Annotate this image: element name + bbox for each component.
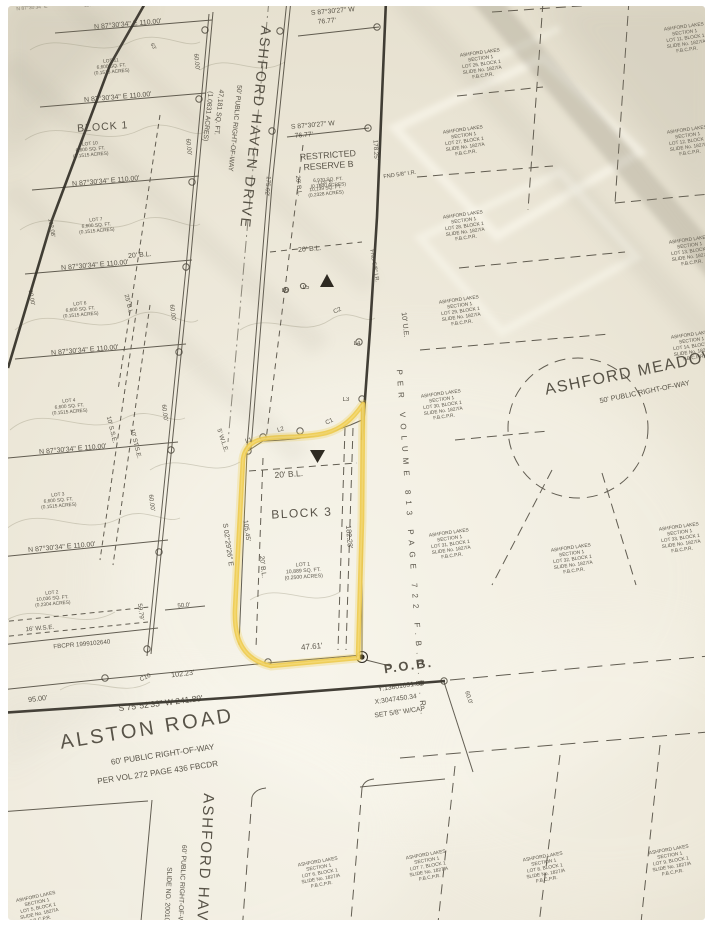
boundary-distance: 178.25'	[371, 140, 379, 160]
setback-20bl-front: 20' B.L.	[274, 468, 303, 480]
curve-l3: L3	[343, 397, 350, 403]
south-distance: 47.61'	[301, 641, 324, 652]
curve-l5: L5	[303, 285, 310, 291]
curve-l4: L4	[354, 341, 361, 347]
plat-map: N 87°30'34" E 110.00'N 87°30'34" E 110.0…	[0, 0, 720, 932]
plat-photo-page: N 87°30'34" E 110.00'N 87°30'34" E 110.0…	[0, 0, 720, 932]
dim-50: 50.0'	[177, 602, 190, 609]
curve-l6: L6	[282, 288, 289, 294]
reserve-note: RESTRICTEDRESERVE B	[299, 148, 357, 172]
